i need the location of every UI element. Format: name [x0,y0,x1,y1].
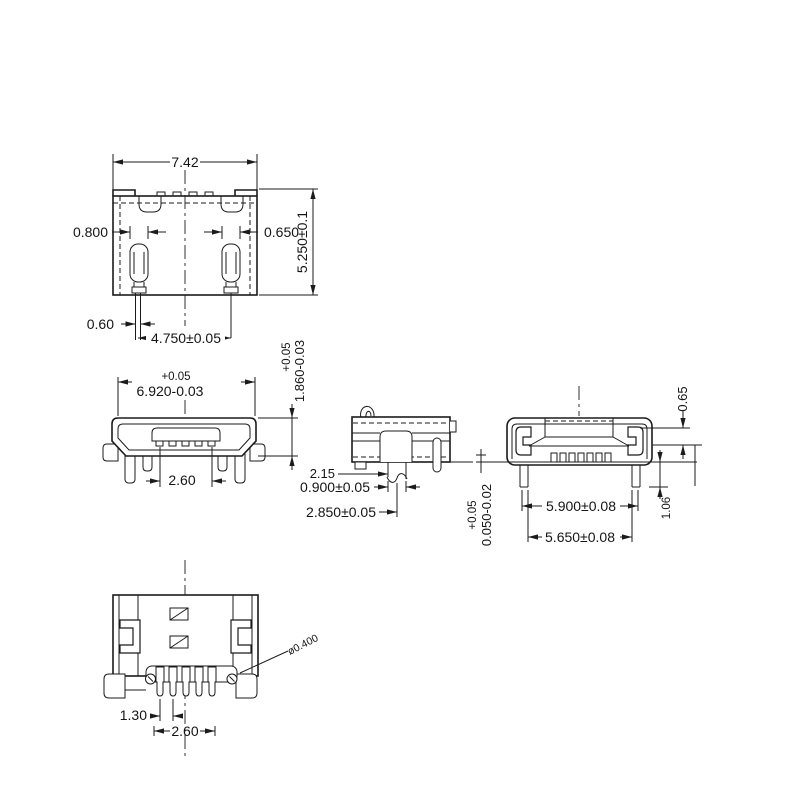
bottom-left-foot [104,674,125,698]
front-tongue [152,428,220,441]
top-left-contact [130,244,148,282]
pin-1 [156,667,164,696]
dim-top-overall-depth: 5.250±0.1 [294,211,310,273]
pin-2 [169,667,177,696]
rear-body-outline [507,418,652,465]
dim-top-overall-width: 7.42 [171,154,198,170]
top-right-contact [222,244,240,282]
dim-top-left-contact-width: 0.800 [73,224,108,240]
pin-4 [195,667,203,696]
dim-front-width: 6.920-0.03 [137,383,204,399]
side-rear-step [450,421,456,432]
side-rear-pin [433,438,441,472]
dim-rear-leg-length: 1.06 [661,497,673,519]
pin-3 [182,667,190,696]
pin-5 [208,667,216,696]
dim-rear-leg-span-outer: 5.900±0.08 [546,498,616,514]
dim-bottom-pin-pitch: 1.30 [120,707,147,723]
dim-top-lead-span: 4.750±0.05 [151,330,221,346]
engineering-drawing: 7.42 0.800 0.650 5 [0,0,800,800]
side-center-block [380,431,412,462]
dim-front-contact-span: 2.60 [168,472,195,488]
dim-side-leg-width: 0.900±0.05 [300,479,370,495]
bottom-right-foot [236,674,257,698]
dim-bottom-pin-span: 2.60 [171,723,198,739]
dim-top-lead-width: 0.60 [87,316,114,332]
dim-side-leg-offset: 2.850±0.05 [306,504,376,520]
dim-rear-leg-span-inner: 5.650±0.08 [545,529,615,545]
dim-rear-standoff: 0.050-0.02 [479,484,494,546]
dim-front-width-tol: +0.05 [161,371,190,383]
drawing-page: 7.42 0.800 0.650 5 [0,0,800,800]
dim-rear-shell-step: 0.65 [675,386,690,411]
side-front-contact [355,462,366,469]
dim-rear-standoff-tol: +0.05 [467,500,479,529]
dim-front-height: 1.860-0.03 [292,340,307,402]
